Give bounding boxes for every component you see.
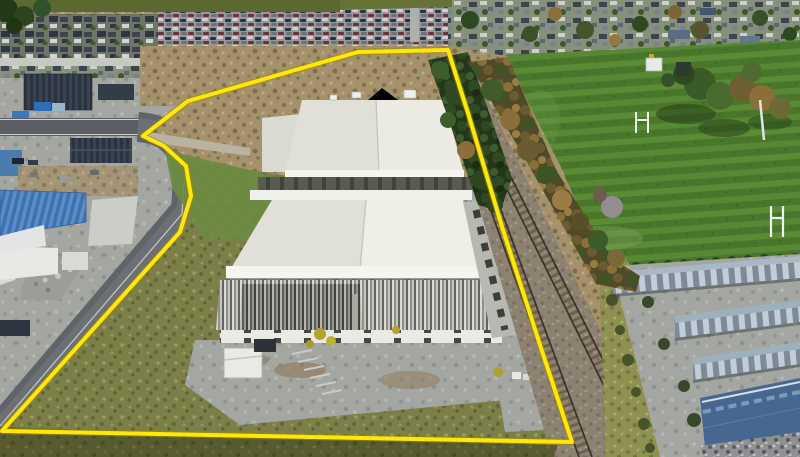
field-shed-white [646, 58, 662, 71]
small-shed [224, 348, 262, 378]
white-pad [88, 196, 138, 246]
white-building [62, 252, 88, 270]
top-hedge [0, 0, 340, 12]
junk [60, 176, 70, 182]
junk [90, 170, 99, 175]
blue-container-2 [12, 111, 29, 119]
junk [30, 172, 38, 177]
dark-roof [98, 84, 134, 100]
blue-container [34, 102, 51, 111]
white-canopies [0, 246, 58, 280]
front-north-fascia [250, 190, 472, 200]
roof-vent [352, 92, 361, 98]
corrugated-dark-section [240, 284, 362, 330]
roof-vent [404, 90, 416, 98]
rear-eave-fascia [285, 170, 464, 177]
white-tank [512, 372, 521, 379]
parked-car-2 [28, 160, 38, 165]
roof-ladder [352, 294, 358, 332]
roof-vent [330, 95, 337, 100]
car-yard [158, 5, 452, 52]
front-eave-fascia [226, 266, 498, 278]
tree-shadow [656, 104, 716, 124]
field-shed-dark [676, 62, 691, 76]
tree-shadow [698, 119, 750, 137]
rust-stain [380, 371, 440, 389]
aerial-photo [0, 0, 800, 457]
dark-container [254, 339, 276, 352]
light-truck [52, 103, 65, 111]
digger [649, 54, 654, 58]
inter-building-gap [258, 177, 472, 190]
dark-canopy [0, 320, 30, 336]
aerial-photo-canvas [0, 0, 800, 457]
parked-car [12, 158, 24, 164]
